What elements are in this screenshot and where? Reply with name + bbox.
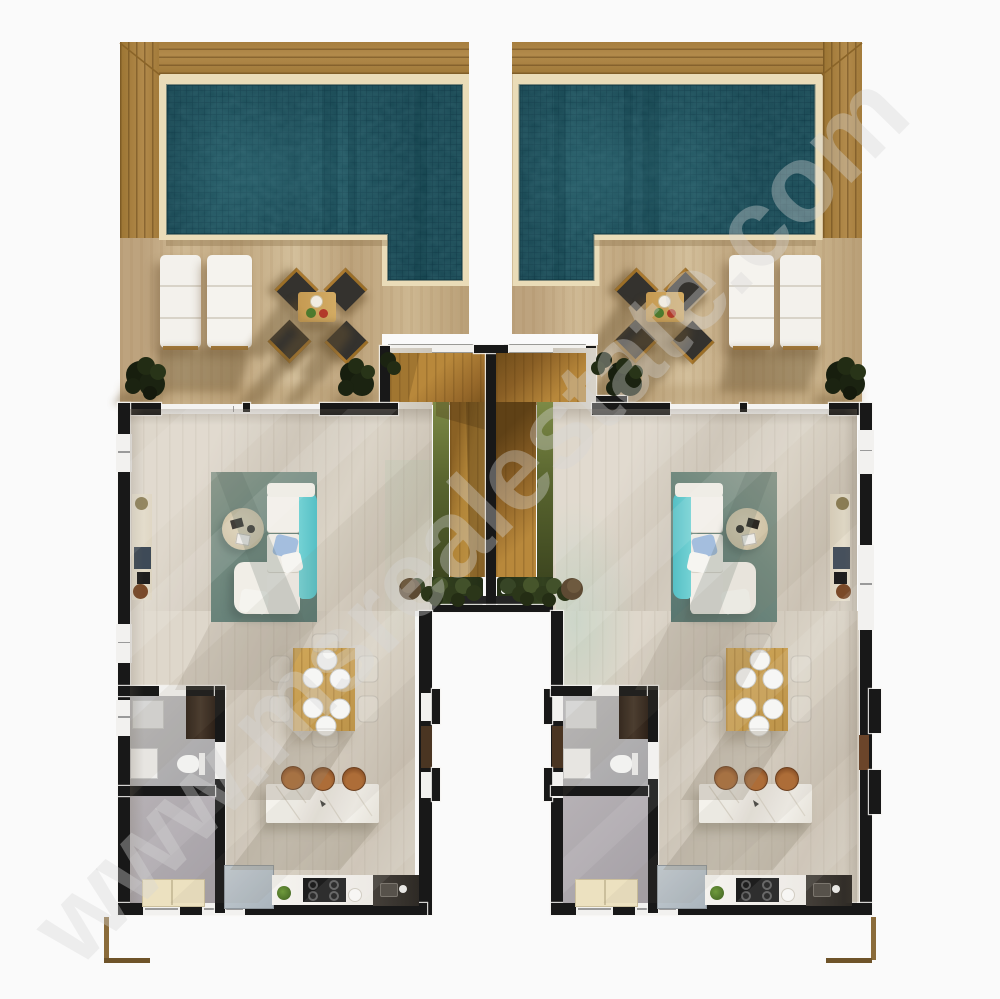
svg-text:www.msrealestate.com: www.msrealestate.com <box>7 50 931 988</box>
